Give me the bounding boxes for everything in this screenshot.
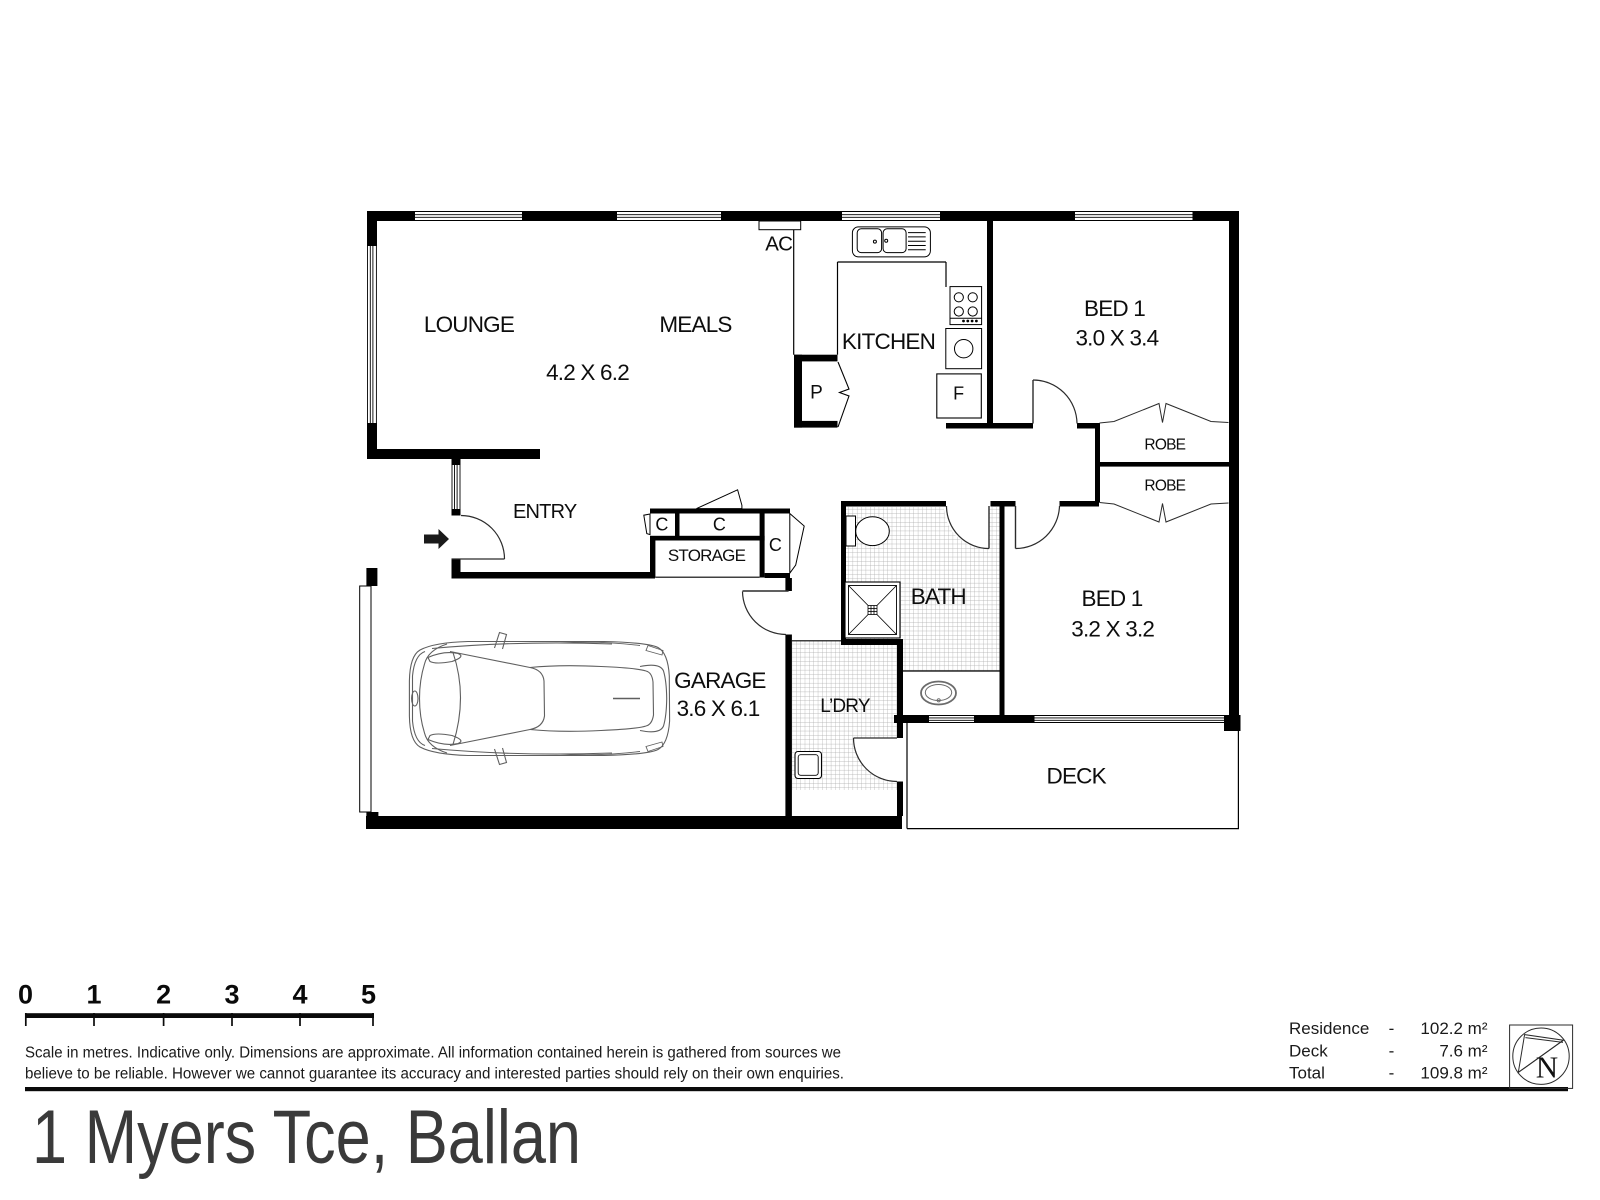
svg-text:C: C: [713, 515, 726, 535]
svg-text:LOUNGE: LOUNGE: [424, 312, 515, 337]
svg-text:3.2 X 3.2: 3.2 X 3.2: [1071, 617, 1154, 642]
svg-text:DECK: DECK: [1047, 764, 1107, 789]
svg-text:3.0 X 3.4: 3.0 X 3.4: [1075, 326, 1158, 351]
svg-text:C: C: [655, 515, 668, 535]
svg-text:5: 5: [361, 980, 376, 1010]
svg-text:-: -: [1389, 1019, 1395, 1038]
svg-text:L’DRY: L’DRY: [820, 696, 871, 717]
svg-text:1: 1: [86, 980, 101, 1010]
svg-text:GARAGE: GARAGE: [674, 668, 766, 693]
svg-text:BED 1: BED 1: [1081, 586, 1142, 611]
svg-text:0: 0: [18, 980, 33, 1010]
svg-text:STORAGE: STORAGE: [668, 546, 746, 565]
svg-text:AC: AC: [765, 233, 793, 256]
svg-text:F: F: [953, 384, 964, 404]
svg-text:102.2 m²: 102.2 m²: [1420, 1019, 1487, 1038]
svg-text:4: 4: [292, 980, 307, 1010]
svg-text:C: C: [769, 535, 782, 555]
svg-text:3: 3: [224, 980, 239, 1010]
svg-text:BATH: BATH: [911, 584, 966, 609]
svg-text:ROBE: ROBE: [1144, 478, 1185, 495]
svg-text:-: -: [1389, 1064, 1395, 1083]
svg-text:1 Myers Tce, Ballan: 1 Myers Tce, Ballan: [32, 1095, 581, 1180]
svg-text:KITCHEN: KITCHEN: [842, 329, 935, 354]
svg-text:ROBE: ROBE: [1144, 436, 1185, 453]
svg-text:Scale in metres. Indicative on: Scale in metres. Indicative only. Dimens…: [25, 1045, 841, 1062]
svg-text:BED 1: BED 1: [1084, 296, 1145, 321]
svg-text:P: P: [810, 383, 822, 404]
svg-text:109.8 m²: 109.8 m²: [1420, 1064, 1487, 1083]
svg-text:4.2 X 6.2: 4.2 X 6.2: [546, 360, 629, 385]
svg-text:ENTRY: ENTRY: [513, 501, 577, 523]
svg-text:believe to be reliable. Howeve: believe to be reliable. However we canno…: [25, 1066, 844, 1083]
svg-text:N: N: [1536, 1050, 1558, 1085]
svg-text:Total: Total: [1289, 1064, 1325, 1083]
svg-text:2: 2: [156, 980, 171, 1010]
svg-text:7.6 m²: 7.6 m²: [1439, 1042, 1488, 1061]
svg-text:3.6 X 6.1: 3.6 X 6.1: [677, 696, 760, 721]
svg-text:-: -: [1389, 1042, 1395, 1061]
svg-text:Residence: Residence: [1289, 1019, 1369, 1038]
svg-text:Deck: Deck: [1289, 1042, 1328, 1061]
svg-text:MEALS: MEALS: [659, 312, 731, 337]
